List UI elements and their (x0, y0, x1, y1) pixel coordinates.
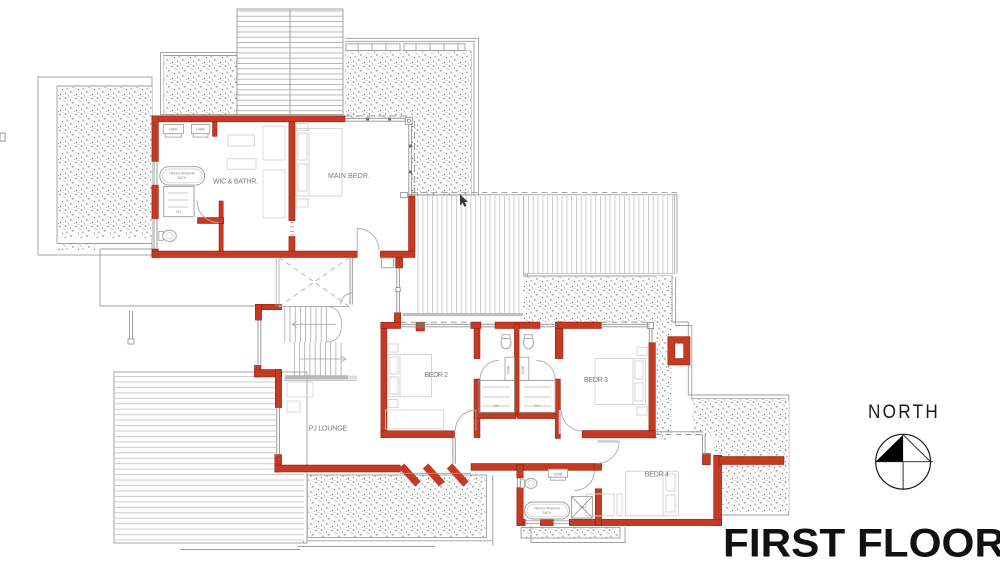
svg-text:MAIN BEDR.: MAIN BEDR. (328, 173, 370, 180)
svg-text:FIRST FLOOR: FIRST FLOOR (723, 522, 1000, 566)
svg-text:BEDR 3: BEDR 3 (584, 375, 608, 384)
svg-text:HWB: HWB (521, 365, 525, 374)
svg-text:BEDR 2: BEDR 2 (425, 370, 449, 379)
svg-text:NORTH: NORTH (868, 401, 940, 423)
svg-text:BEDR 4: BEDR 4 (645, 470, 669, 479)
svg-text:SH: SH (535, 404, 540, 408)
svg-text:BATH: BATH (178, 176, 187, 180)
svg-text:HWB: HWB (169, 128, 178, 132)
svg-text:SH: SH (176, 210, 181, 214)
svg-text:WIC & BATHR.: WIC & BATHR. (213, 179, 258, 186)
svg-text:PJ LOUNGE: PJ LOUNGE (309, 424, 348, 433)
svg-text:BATH: BATH (543, 511, 552, 515)
svg-text:HWB: HWB (554, 472, 563, 476)
svg-text:HWB: HWB (507, 365, 511, 374)
svg-text:SH: SH (494, 404, 499, 408)
svg-text:HWB: HWB (196, 128, 205, 132)
svg-text:SH: SH (580, 506, 585, 510)
